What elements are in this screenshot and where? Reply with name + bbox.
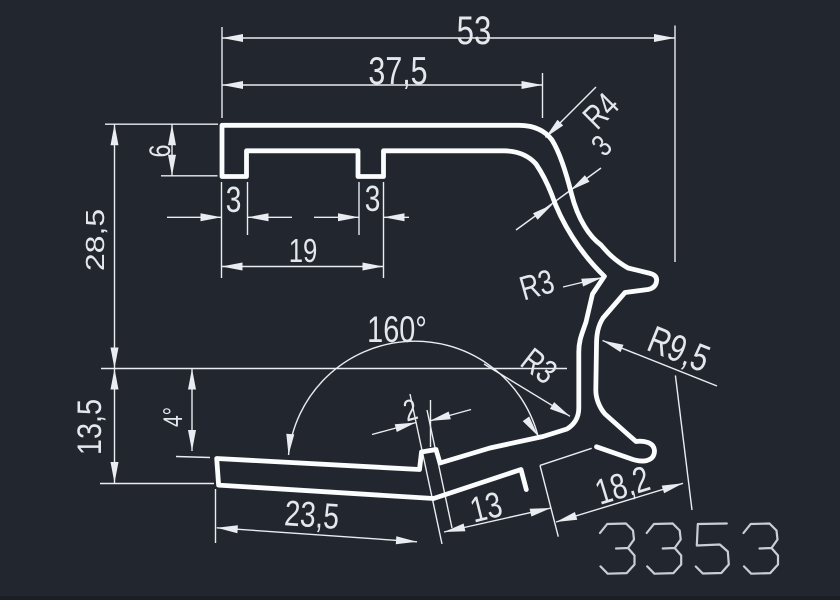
svg-text:13,5: 13,5 <box>71 399 109 455</box>
svg-text:4°: 4° <box>159 407 189 427</box>
svg-text:53: 53 <box>457 8 492 53</box>
svg-text:3: 3 <box>226 180 242 220</box>
svg-text:6: 6 <box>143 144 176 157</box>
svg-text:37,5: 37,5 <box>368 49 427 92</box>
svg-text:28,5: 28,5 <box>81 209 110 271</box>
svg-text:3: 3 <box>365 179 381 219</box>
svg-text:19: 19 <box>289 233 318 270</box>
svg-text:160°: 160° <box>367 310 427 351</box>
svg-text:23,5: 23,5 <box>283 493 340 537</box>
